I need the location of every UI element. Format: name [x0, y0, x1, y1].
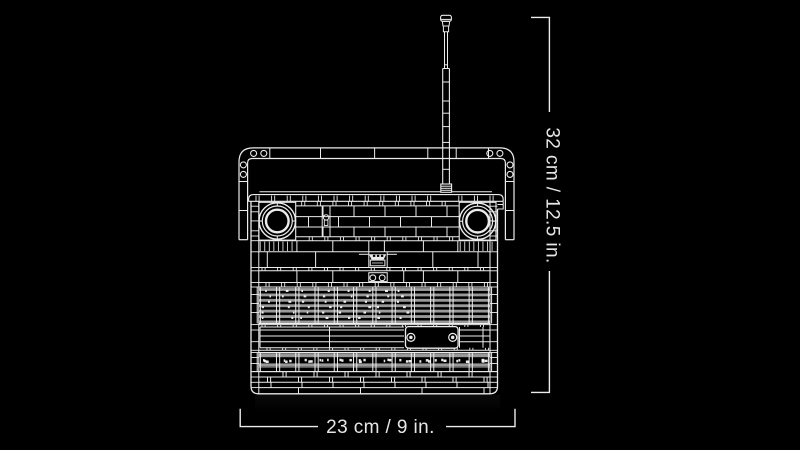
svg-text:23 cm / 9 in.: 23 cm / 9 in. [326, 417, 435, 438]
svg-text:32 cm / 12.5 in.: 32 cm / 12.5 in. [542, 127, 563, 263]
